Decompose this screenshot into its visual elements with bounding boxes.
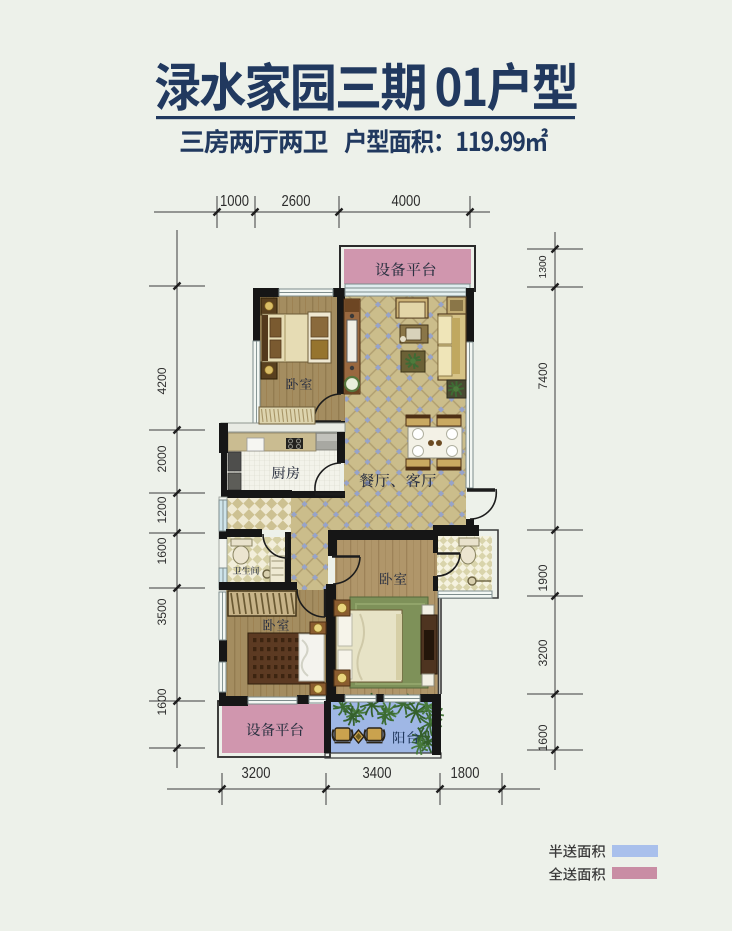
svg-text:1000: 1000 [220,193,249,210]
svg-text:1600: 1600 [536,724,550,751]
svg-text:1600: 1600 [155,688,169,715]
svg-text:2600: 2600 [282,193,311,210]
svg-text:1900: 1900 [536,564,550,591]
svg-text:3500: 3500 [155,598,169,625]
svg-text:1200: 1200 [155,496,169,523]
svg-text:3200: 3200 [536,639,550,666]
svg-text:1300: 1300 [537,255,549,278]
svg-text:7400: 7400 [536,362,550,389]
svg-text:3400: 3400 [363,765,392,782]
svg-text:3200: 3200 [242,765,271,782]
svg-text:4200: 4200 [155,367,169,394]
svg-text:1800: 1800 [451,765,480,782]
svg-text:2000: 2000 [155,445,169,472]
svg-text:4000: 4000 [392,193,421,210]
svg-text:1600: 1600 [155,537,169,564]
